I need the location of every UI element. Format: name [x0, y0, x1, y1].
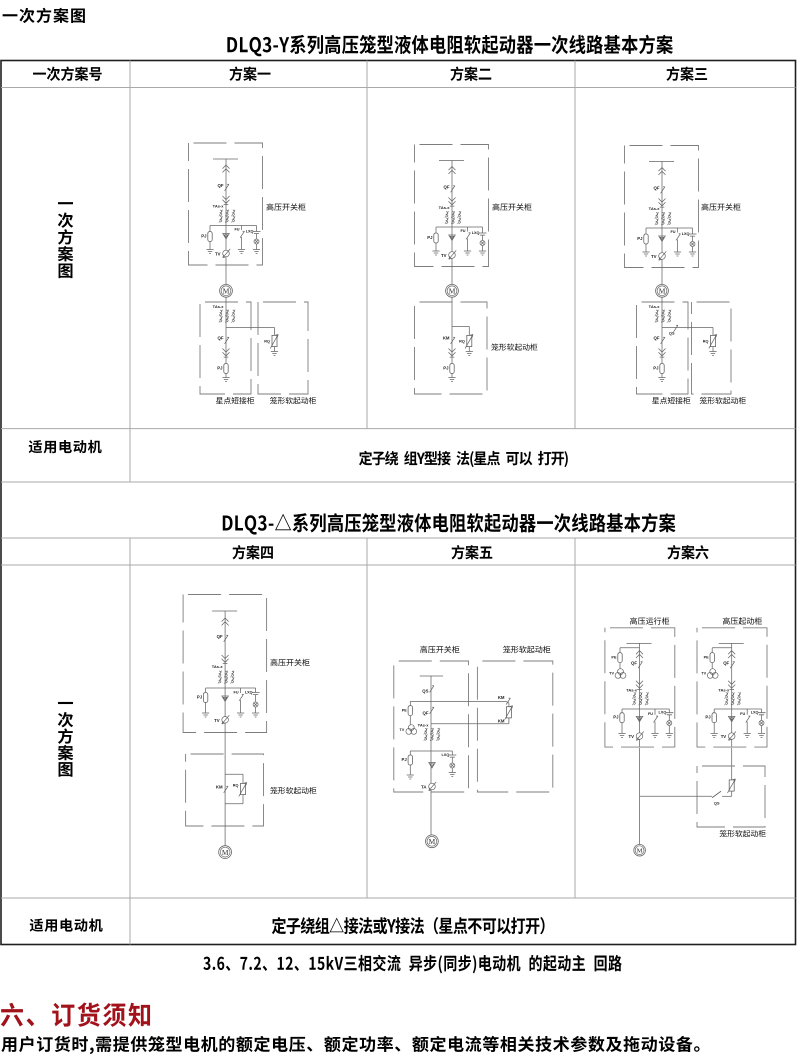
svg-text:QS: QS — [714, 802, 720, 806]
svg-text:QS: QS — [422, 689, 428, 694]
svg-text:QS: QS — [669, 332, 675, 336]
svg-text:TV: TV — [701, 671, 706, 675]
svg-text:RQ: RQ — [233, 784, 239, 788]
svg-text:QF: QF — [217, 634, 223, 639]
svg-text:TV: TV — [399, 728, 404, 732]
svg-text:TV: TV — [214, 718, 220, 723]
svg-text:TA: TA — [421, 785, 426, 790]
svg-text:FU: FU — [460, 229, 465, 233]
svg-text:TAs-x: TAs-x — [649, 304, 661, 309]
svg-text:TAs-x: TAs-x — [626, 687, 638, 692]
svg-text:PE: PE — [611, 655, 617, 659]
svg-text:TAs-x: TAs-x — [212, 664, 224, 669]
svg-text:PE: PE — [704, 655, 710, 659]
svg-text:PJ: PJ — [197, 695, 203, 700]
svg-text:LXQ: LXQ — [441, 753, 449, 757]
svg-text:QF: QF — [723, 660, 729, 665]
svg-text:TAs-x: TAs-x — [718, 687, 730, 692]
svg-text:QF: QF — [631, 660, 637, 665]
svg-text:FU: FU — [648, 712, 653, 716]
svg-text:PJ: PJ — [217, 366, 223, 371]
svg-text:PJ: PJ — [402, 757, 408, 762]
svg-text:PJ: PJ — [613, 715, 619, 720]
svg-text:QF: QF — [218, 183, 224, 188]
svg-text:QF: QF — [654, 336, 660, 341]
svg-text:KM: KM — [216, 785, 223, 790]
svg-text:LXQ: LXQ — [751, 711, 759, 715]
svg-text:TAs-x: TAs-x — [418, 723, 430, 728]
svg-text:LXQ: LXQ — [658, 711, 666, 715]
svg-text:PJ: PJ — [705, 715, 711, 720]
svg-text:LXQ: LXQ — [682, 232, 690, 236]
svg-text:LXQ: LXQ — [472, 231, 480, 235]
svg-text:RQ: RQ — [459, 340, 465, 344]
svg-text:RQ: RQ — [264, 340, 270, 344]
svg-text:KM: KM — [498, 695, 505, 700]
svg-text:FU: FU — [670, 230, 675, 234]
svg-text:QF: QF — [218, 336, 224, 341]
svg-text:PJ: PJ — [427, 235, 433, 240]
svg-text:LXQ: LXQ — [245, 691, 253, 695]
svg-text:PJ: PJ — [443, 366, 449, 371]
svg-text:FU: FU — [234, 691, 239, 695]
svg-text:RQ: RQ — [703, 340, 709, 344]
svg-text:TV: TV — [629, 734, 635, 739]
svg-text:FU: FU — [740, 712, 745, 716]
svg-text:TV: TV — [651, 254, 657, 259]
svg-text:PE: PE — [402, 709, 408, 713]
svg-text:QF: QF — [423, 711, 429, 716]
svg-text:TAs-x: TAs-x — [213, 204, 225, 209]
svg-text:TAs-x: TAs-x — [649, 206, 661, 211]
svg-text:PJ: PJ — [637, 236, 643, 241]
svg-text:TV: TV — [215, 252, 221, 257]
svg-text:TAs-x: TAs-x — [439, 205, 451, 210]
svg-text:PJ: PJ — [653, 366, 659, 371]
svg-text:FU: FU — [234, 228, 239, 232]
svg-text:LXQ: LXQ — [246, 230, 254, 234]
svg-text:KM: KM — [443, 336, 450, 341]
svg-text:QF: QF — [444, 185, 450, 190]
svg-text:TV: TV — [609, 671, 614, 675]
svg-text:QF: QF — [654, 186, 660, 191]
svg-text:KM: KM — [498, 719, 505, 724]
svg-text:TV: TV — [721, 734, 727, 739]
svg-text:PJ: PJ — [201, 234, 207, 239]
svg-text:TAs-x: TAs-x — [213, 304, 225, 309]
svg-text:TV: TV — [441, 253, 447, 258]
